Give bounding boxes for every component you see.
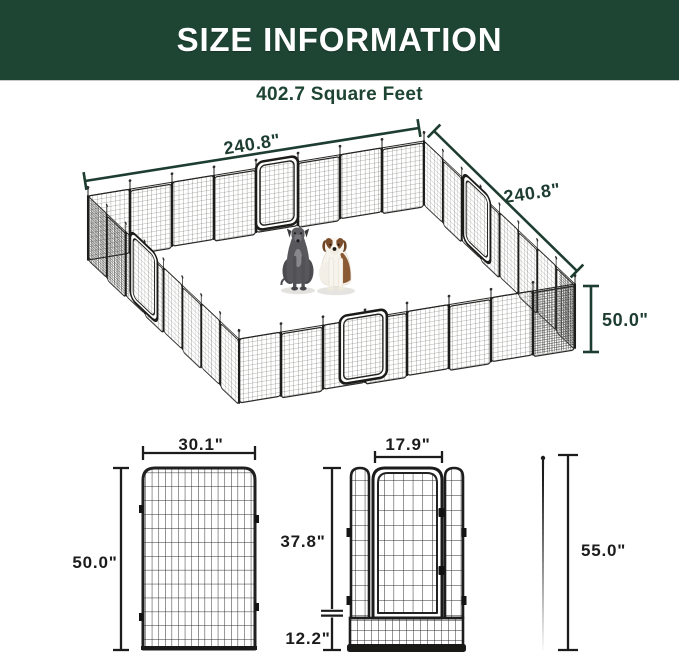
header-banner: SIZE INFORMATION — [0, 0, 679, 80]
size-information-page: SIZE INFORMATION 402.7 Square Feet — [0, 0, 679, 655]
dog-shadow — [281, 287, 315, 294]
page-title: SIZE INFORMATION — [177, 21, 503, 59]
area-subtitle: 402.7 Square Feet — [0, 80, 679, 110]
panel-width-label: 30.1" — [178, 435, 223, 454]
stake-height-label: 55.0" — [581, 541, 626, 560]
dog-figures — [281, 228, 355, 296]
playpen-width-label: 240.8" — [222, 130, 282, 159]
gate-door-width-label: 17.9" — [385, 435, 430, 454]
playpen-depth-label: 240.8" — [502, 179, 561, 207]
playpen-height-label: 50.0" — [602, 310, 649, 330]
playpen-illustration: 240.8" 240.8" 50.0" 30.1" 50.0" — [0, 110, 679, 655]
gate-lower-height-label: 12.2" — [285, 629, 330, 648]
dog-shadow — [317, 287, 355, 295]
gate-diagram — [347, 468, 467, 652]
panel-diagram — [139, 468, 259, 649]
saint-bernard-figure — [319, 238, 351, 291]
stake-diagram — [541, 456, 545, 653]
panel-height-label: 50.0" — [72, 553, 117, 572]
great-dane-figure — [281, 228, 313, 291]
gate-upper-height-label: 37.8" — [280, 532, 325, 551]
